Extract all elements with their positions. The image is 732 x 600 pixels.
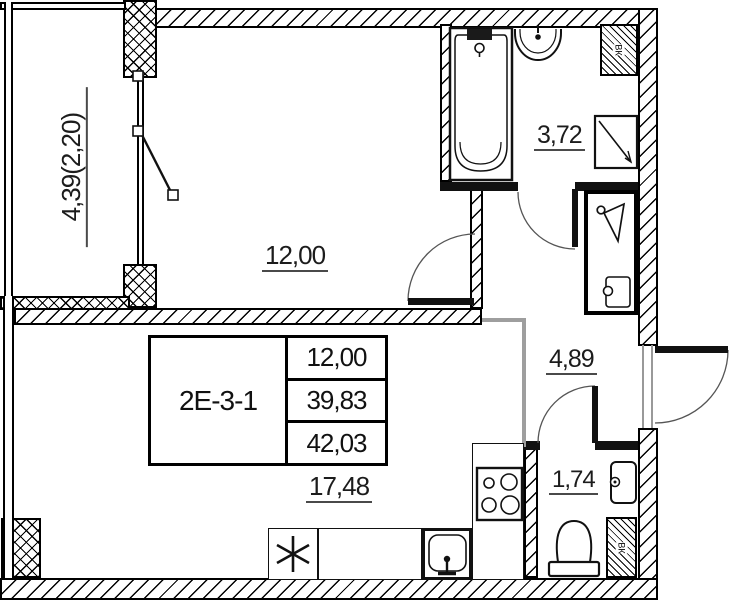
door-swing-arc (538, 386, 595, 443)
balcony-door (133, 71, 178, 200)
toilet (549, 521, 599, 576)
door-leaf (408, 298, 474, 305)
cooktop (477, 468, 522, 520)
kitchen-sink (429, 535, 466, 574)
bathroom-door (518, 189, 578, 249)
room-door (408, 234, 475, 305)
hanger-icon (597, 204, 624, 241)
door-leaf (572, 189, 578, 247)
bathtub (450, 28, 512, 180)
door-swing-arc (655, 350, 728, 423)
door-swing-arc (518, 192, 575, 249)
floor-plan: ВК ВК 2Е-3-1 12,00 39,83 42,03 4,39(2,20… (0, 0, 732, 600)
door-leaf (655, 346, 728, 353)
wc-door (538, 386, 598, 443)
wc-basin (611, 462, 637, 503)
asterisk-symbol (277, 536, 309, 572)
entrance-door (655, 346, 728, 423)
door-swing-arc (408, 234, 475, 301)
bag-icon (604, 277, 631, 307)
washing-machine (595, 116, 637, 168)
wash-basin (515, 25, 561, 60)
door-leaf (592, 386, 598, 443)
fixtures-overlay (0, 0, 732, 600)
